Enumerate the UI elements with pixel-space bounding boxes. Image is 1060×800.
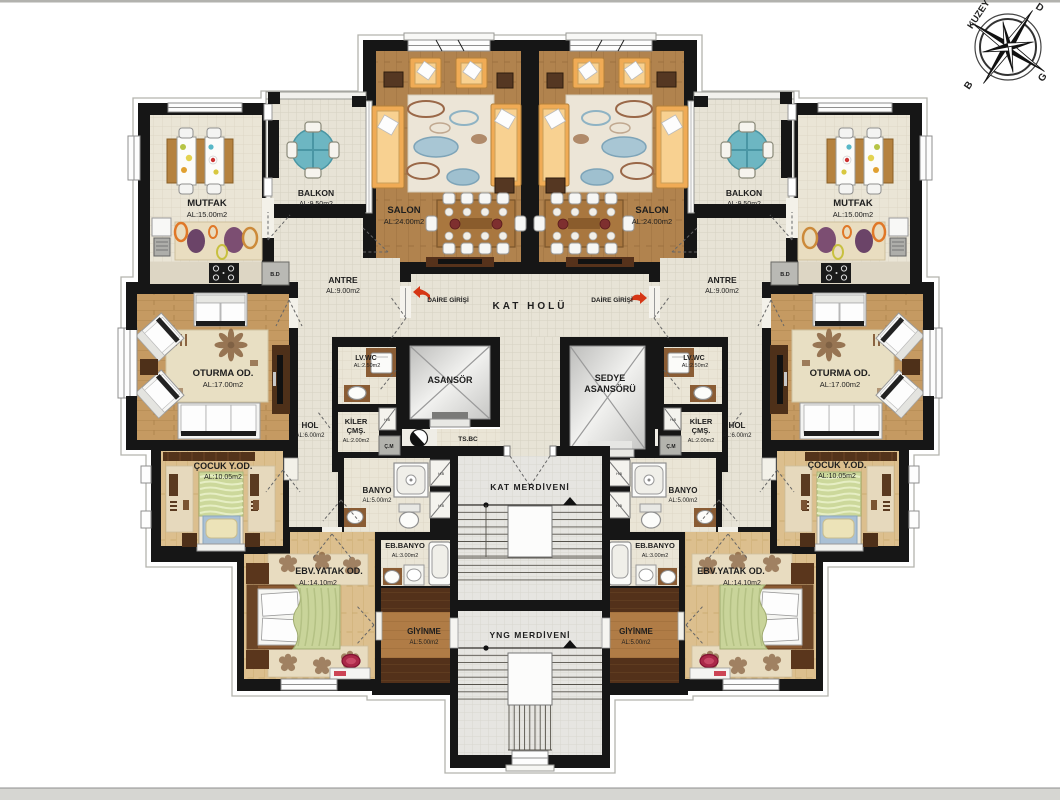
svg-text:AL:9.50m2: AL:9.50m2: [727, 201, 761, 208]
svg-text:AL:17.00m2: AL:17.00m2: [820, 380, 860, 389]
svg-text:ÇMŞ.: ÇMŞ.: [347, 426, 366, 435]
svg-text:ANTRE: ANTRE: [707, 275, 737, 285]
svg-text:BANYO: BANYO: [363, 486, 392, 495]
svg-text:GİYİNME: GİYİNME: [407, 627, 441, 636]
svg-text:AL:2.00m2: AL:2.00m2: [688, 438, 715, 444]
svg-text:KİLER: KİLER: [690, 417, 713, 426]
svg-text:MUTFAK: MUTFAK: [833, 198, 873, 209]
svg-text:AL:14.10m2: AL:14.10m2: [299, 580, 337, 587]
svg-text:KİLER: KİLER: [345, 417, 368, 426]
svg-text:AL:5.00m2: AL:5.00m2: [409, 640, 439, 646]
svg-text:H.B: H.B: [384, 418, 391, 422]
svg-text:ÇOCUK Y.OD.: ÇOCUK Y.OD.: [194, 461, 253, 471]
svg-text:BALKON: BALKON: [726, 188, 762, 198]
svg-text:OTURMA OD.: OTURMA OD.: [193, 368, 254, 379]
svg-text:AL:6.00m2: AL:6.00m2: [295, 433, 325, 439]
svg-text:H.B: H.B: [670, 418, 677, 422]
svg-text:Ç.M: Ç.M: [666, 444, 675, 450]
svg-text:LV.WC: LV.WC: [683, 355, 704, 362]
svg-text:EB.BANYO: EB.BANYO: [385, 541, 425, 550]
svg-text:AL:2.00m2: AL:2.00m2: [343, 438, 370, 444]
svg-text:SEDYE: SEDYE: [595, 373, 626, 383]
svg-text:EB.BANYO: EB.BANYO: [635, 541, 675, 550]
svg-text:ASANSÖR: ASANSÖR: [427, 375, 473, 385]
svg-text:AL:5.00m2: AL:5.00m2: [621, 640, 651, 646]
svg-text:AL:10.05m2: AL:10.05m2: [818, 473, 856, 480]
svg-text:AL:24.00m2: AL:24.00m2: [384, 217, 424, 226]
svg-text:KAT HOLÜ: KAT HOLÜ: [493, 299, 568, 312]
svg-text:ASANSÖRÜ: ASANSÖRÜ: [584, 384, 636, 394]
svg-text:AL:9.50m2: AL:9.50m2: [299, 201, 333, 208]
svg-text:YNG MERDİVENİ: YNG MERDİVENİ: [489, 630, 570, 640]
svg-text:DAİRE GİRİŞİ: DAİRE GİRİŞİ: [427, 296, 469, 304]
svg-text:MUTFAK: MUTFAK: [187, 198, 227, 209]
svg-text:Ç.M: Ç.M: [384, 444, 393, 450]
svg-text:HOL: HOL: [729, 421, 746, 430]
svg-text:AL:9.00m2: AL:9.00m2: [326, 288, 360, 295]
svg-text:AL:5.00m2: AL:5.00m2: [362, 498, 392, 504]
svg-text:AL:3.00m2: AL:3.00m2: [642, 553, 669, 559]
svg-text:DAİRE GİRİŞİ: DAİRE GİRİŞİ: [591, 296, 633, 304]
svg-text:AL:24.00m2: AL:24.00m2: [632, 217, 672, 226]
svg-text:AL:5.00m2: AL:5.00m2: [668, 498, 698, 504]
svg-text:ÇOCUK Y.OD.: ÇOCUK Y.OD.: [808, 460, 867, 470]
svg-text:AL:2.50m2: AL:2.50m2: [682, 363, 709, 369]
svg-text:SALON: SALON: [387, 205, 420, 216]
svg-text:AL:10.05m2: AL:10.05m2: [204, 474, 242, 481]
svg-text:AL:14.10m2: AL:14.10m2: [723, 580, 761, 587]
svg-text:AL:17.00m2: AL:17.00m2: [203, 380, 243, 389]
svg-text:ANTRE: ANTRE: [328, 275, 358, 285]
svg-text:B.D: B.D: [270, 272, 280, 278]
svg-text:TS.BC: TS.BC: [458, 436, 478, 443]
svg-text:GİYİNME: GİYİNME: [619, 627, 653, 636]
svg-text:BALKON: BALKON: [298, 188, 334, 198]
svg-text:SALON: SALON: [635, 205, 668, 216]
svg-text:KAT MERDİVENİ: KAT MERDİVENİ: [490, 482, 569, 492]
svg-text:B.D: B.D: [780, 272, 790, 278]
svg-text:LV.WC: LV.WC: [355, 355, 376, 362]
svg-text:H.B: H.B: [438, 472, 445, 476]
svg-text:EBV.YATAK OD.: EBV.YATAK OD.: [295, 566, 363, 576]
svg-text:OTURMA OD.: OTURMA OD.: [810, 368, 871, 379]
svg-text:AL:3.00m2: AL:3.00m2: [392, 553, 419, 559]
svg-text:H.B: H.B: [616, 472, 623, 476]
svg-text:EBV.YATAK OD.: EBV.YATAK OD.: [697, 566, 765, 576]
svg-text:ÇMŞ.: ÇMŞ.: [692, 426, 711, 435]
svg-text:HOL: HOL: [302, 421, 319, 430]
svg-text:H.B: H.B: [438, 504, 445, 508]
svg-text:AL:6.00m2: AL:6.00m2: [722, 433, 752, 439]
svg-text:H.B: H.B: [616, 504, 623, 508]
svg-text:AL:2.50m2: AL:2.50m2: [354, 363, 381, 369]
svg-text:BANYO: BANYO: [669, 486, 698, 495]
svg-text:AL:15.00m2: AL:15.00m2: [833, 210, 873, 219]
svg-text:AL:9.00m2: AL:9.00m2: [705, 288, 739, 295]
svg-text:AL:15.00m2: AL:15.00m2: [187, 210, 227, 219]
